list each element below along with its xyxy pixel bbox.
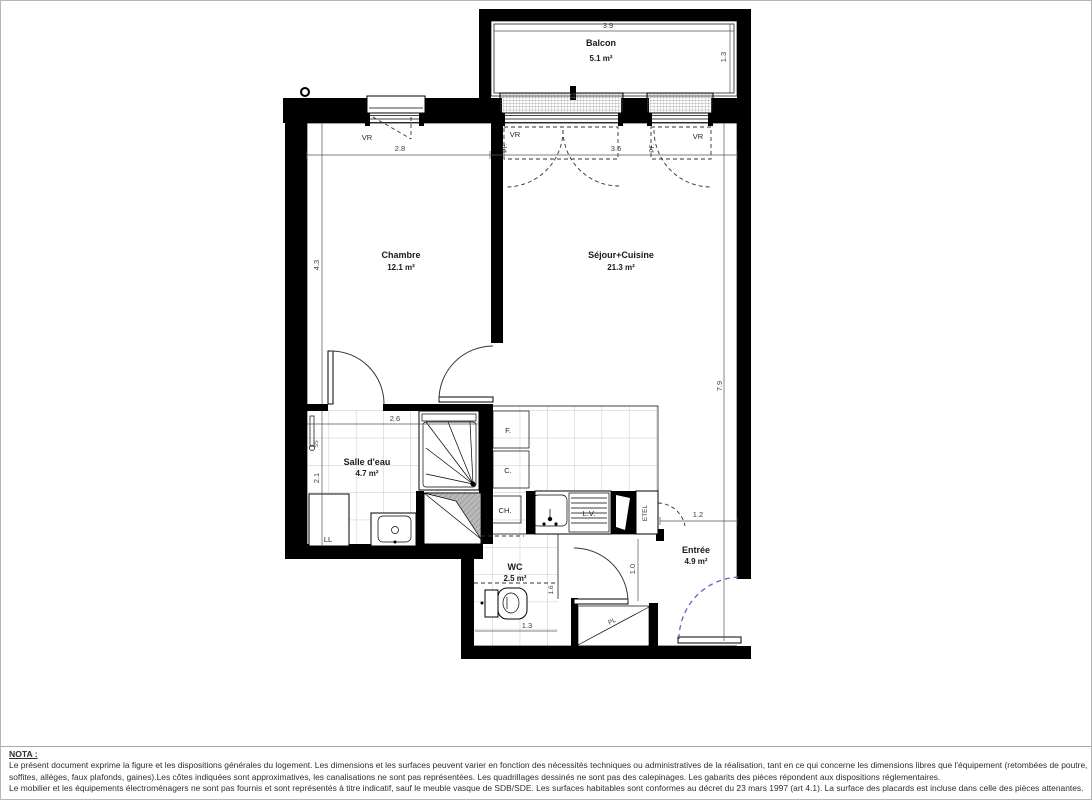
sejour-window1-dashbox — [504, 127, 618, 159]
etel-door-swing — [658, 503, 685, 526]
fridge-label: F. — [505, 426, 511, 435]
nota-title: NOTA : — [9, 749, 1087, 759]
balcony-right-wall — [737, 9, 751, 98]
nota-line-2: soffites, allèges, faux plafonds, gaines… — [9, 772, 1087, 784]
technical-shaft — [424, 493, 481, 544]
balcony-inner-line — [491, 21, 737, 96]
dim-4-3: 4.3 — [312, 260, 321, 270]
top-wall-seg3 — [621, 98, 649, 123]
dim-7-9: 7.9 — [715, 381, 724, 391]
left-wall — [285, 98, 307, 559]
dim-1-6-wc: 1.6 — [548, 585, 555, 594]
nota-line-3: Le mobilier et les équipements électromé… — [9, 783, 1087, 795]
nota-line-1: Le présent document exprime la figure et… — [9, 760, 1087, 772]
hall-wall-seg2 — [383, 404, 493, 411]
dim-1-3-wc: 1.3 — [522, 621, 532, 630]
dishwasher-label: L.V. — [583, 509, 596, 518]
boiler-label: CH. — [499, 506, 512, 515]
pl-label: PL — [607, 617, 618, 627]
dim-2-1: 2.1 — [312, 473, 321, 483]
dim-2-8: 2.8 — [395, 144, 405, 153]
entree-area: 4.9 m² — [684, 557, 707, 566]
dim-1-0: 1.0 — [628, 564, 637, 574]
balcony-left-wall — [479, 9, 491, 98]
sejour-window1-box — [500, 93, 623, 113]
sejour-window2-box — [647, 93, 713, 113]
chambre-door-swing — [331, 351, 384, 404]
windows — [365, 93, 713, 187]
chambre-door-leaf — [328, 351, 333, 404]
pf-label-window1: PF. — [502, 143, 509, 153]
hall-door-swing — [574, 548, 628, 602]
radiator-label: SS — [314, 440, 320, 448]
sejour-door-swing — [439, 346, 493, 400]
shower — [419, 411, 479, 490]
vr-label-chambre: VR — [362, 133, 373, 142]
shaft-left-wall — [416, 491, 424, 546]
dim-3-6: 3.6 — [611, 144, 621, 153]
toilet — [481, 588, 528, 619]
sejour-window2-sill — [647, 113, 713, 126]
chambre-window-box — [367, 96, 425, 113]
pl-left-stub — [571, 598, 578, 646]
bottom-wall — [461, 646, 751, 659]
salle-eau-area: 4.7 m² — [355, 469, 378, 478]
entry-door-leaf — [678, 637, 741, 643]
washing-machine-label: LL — [324, 535, 332, 544]
wc-name: WC — [508, 562, 523, 572]
sejour-area: 21.3 m² — [607, 263, 635, 272]
vr-label-window1: VR — [510, 130, 521, 139]
sejour-door-leaf — [439, 397, 493, 402]
etel-label: ETEL — [642, 504, 649, 521]
floor-plan-drawing: Balcon 5.1 m² Chambre 12.1 m² Séjour+Cui… — [1, 1, 1092, 746]
cooking-label: C. — [504, 466, 512, 475]
dim-1-2: 1.2 — [693, 510, 703, 519]
chambre-casement-dash — [373, 117, 411, 139]
sejour-name: Séjour+Cuisine — [588, 250, 654, 260]
balcony-top-wall — [479, 9, 749, 21]
sejour-window1-sill — [500, 113, 623, 126]
dim-2-6: 2.6 — [390, 414, 400, 423]
pl-closet — [578, 606, 649, 646]
entry-door-swing — [679, 577, 741, 639]
balcon-area: 5.1 m² — [589, 54, 612, 63]
wc-left-wall — [461, 544, 474, 646]
top-wall-seg2 — [421, 98, 502, 123]
salle-eau-name: Salle d'eau — [344, 457, 391, 467]
post-marker — [301, 88, 309, 96]
pf-label-window2: PF. — [649, 143, 656, 153]
chambre-area: 12.1 m² — [387, 263, 415, 272]
french-door-right-swing — [563, 130, 619, 186]
dim-3-9: 3.9 — [603, 21, 613, 30]
kitchen-sink — [533, 491, 611, 534]
vanity-basin — [371, 513, 416, 546]
vr-label-window2: VR — [693, 132, 704, 141]
wc-area: 2.5 m² — [503, 574, 526, 583]
hall-wall-seg1 — [301, 404, 328, 411]
dim-1-3-balcon: 1.3 — [719, 52, 728, 62]
entree-name: Entrée — [682, 545, 710, 555]
balcony-inner-line2 — [494, 24, 734, 93]
floor-plan-page: Balcon 5.1 m² Chambre 12.1 m² Séjour+Cui… — [0, 0, 1092, 800]
nota-footer: NOTA : Le présent document exprime la fi… — [1, 746, 1092, 800]
pl-right-stub — [649, 603, 658, 646]
chambre-name: Chambre — [381, 250, 420, 260]
chambre-sejour-wall — [491, 123, 503, 343]
balcon-name: Balcon — [586, 38, 616, 48]
hall-door-leaf — [574, 599, 628, 604]
chambre-window-sill — [365, 113, 424, 126]
right-wall — [737, 96, 751, 579]
